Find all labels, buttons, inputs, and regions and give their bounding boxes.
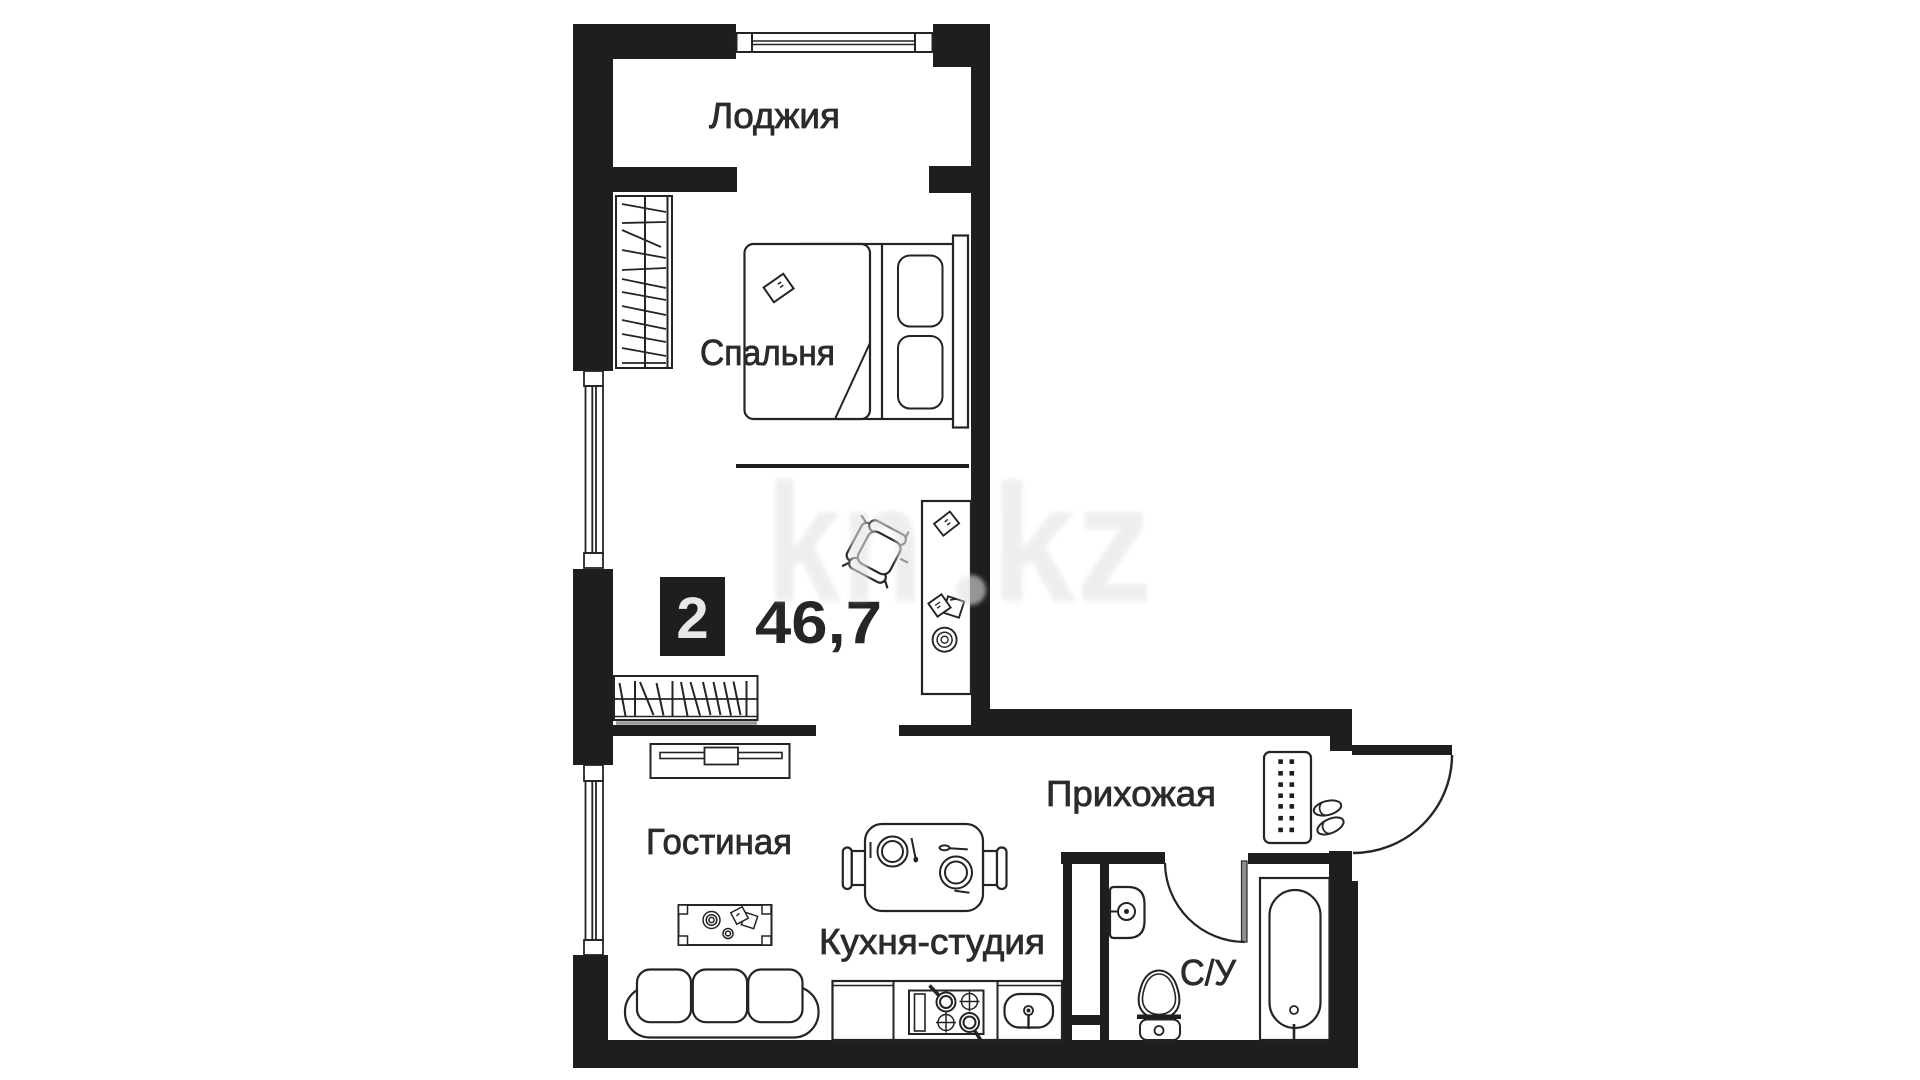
- svg-text:2: 2: [676, 586, 708, 651]
- svg-text:Кухня-студия: Кухня-студия: [819, 921, 1045, 962]
- svg-text:Прихожая: Прихожая: [1046, 773, 1216, 814]
- svg-text:С/У: С/У: [1180, 952, 1237, 993]
- svg-text:Гостиная: Гостиная: [646, 821, 792, 862]
- svg-text:Спальня: Спальня: [700, 332, 835, 373]
- svg-text:Лоджия: Лоджия: [709, 95, 840, 136]
- svg-text:kn: kn: [766, 449, 923, 637]
- svg-text:kz: kz: [991, 449, 1152, 637]
